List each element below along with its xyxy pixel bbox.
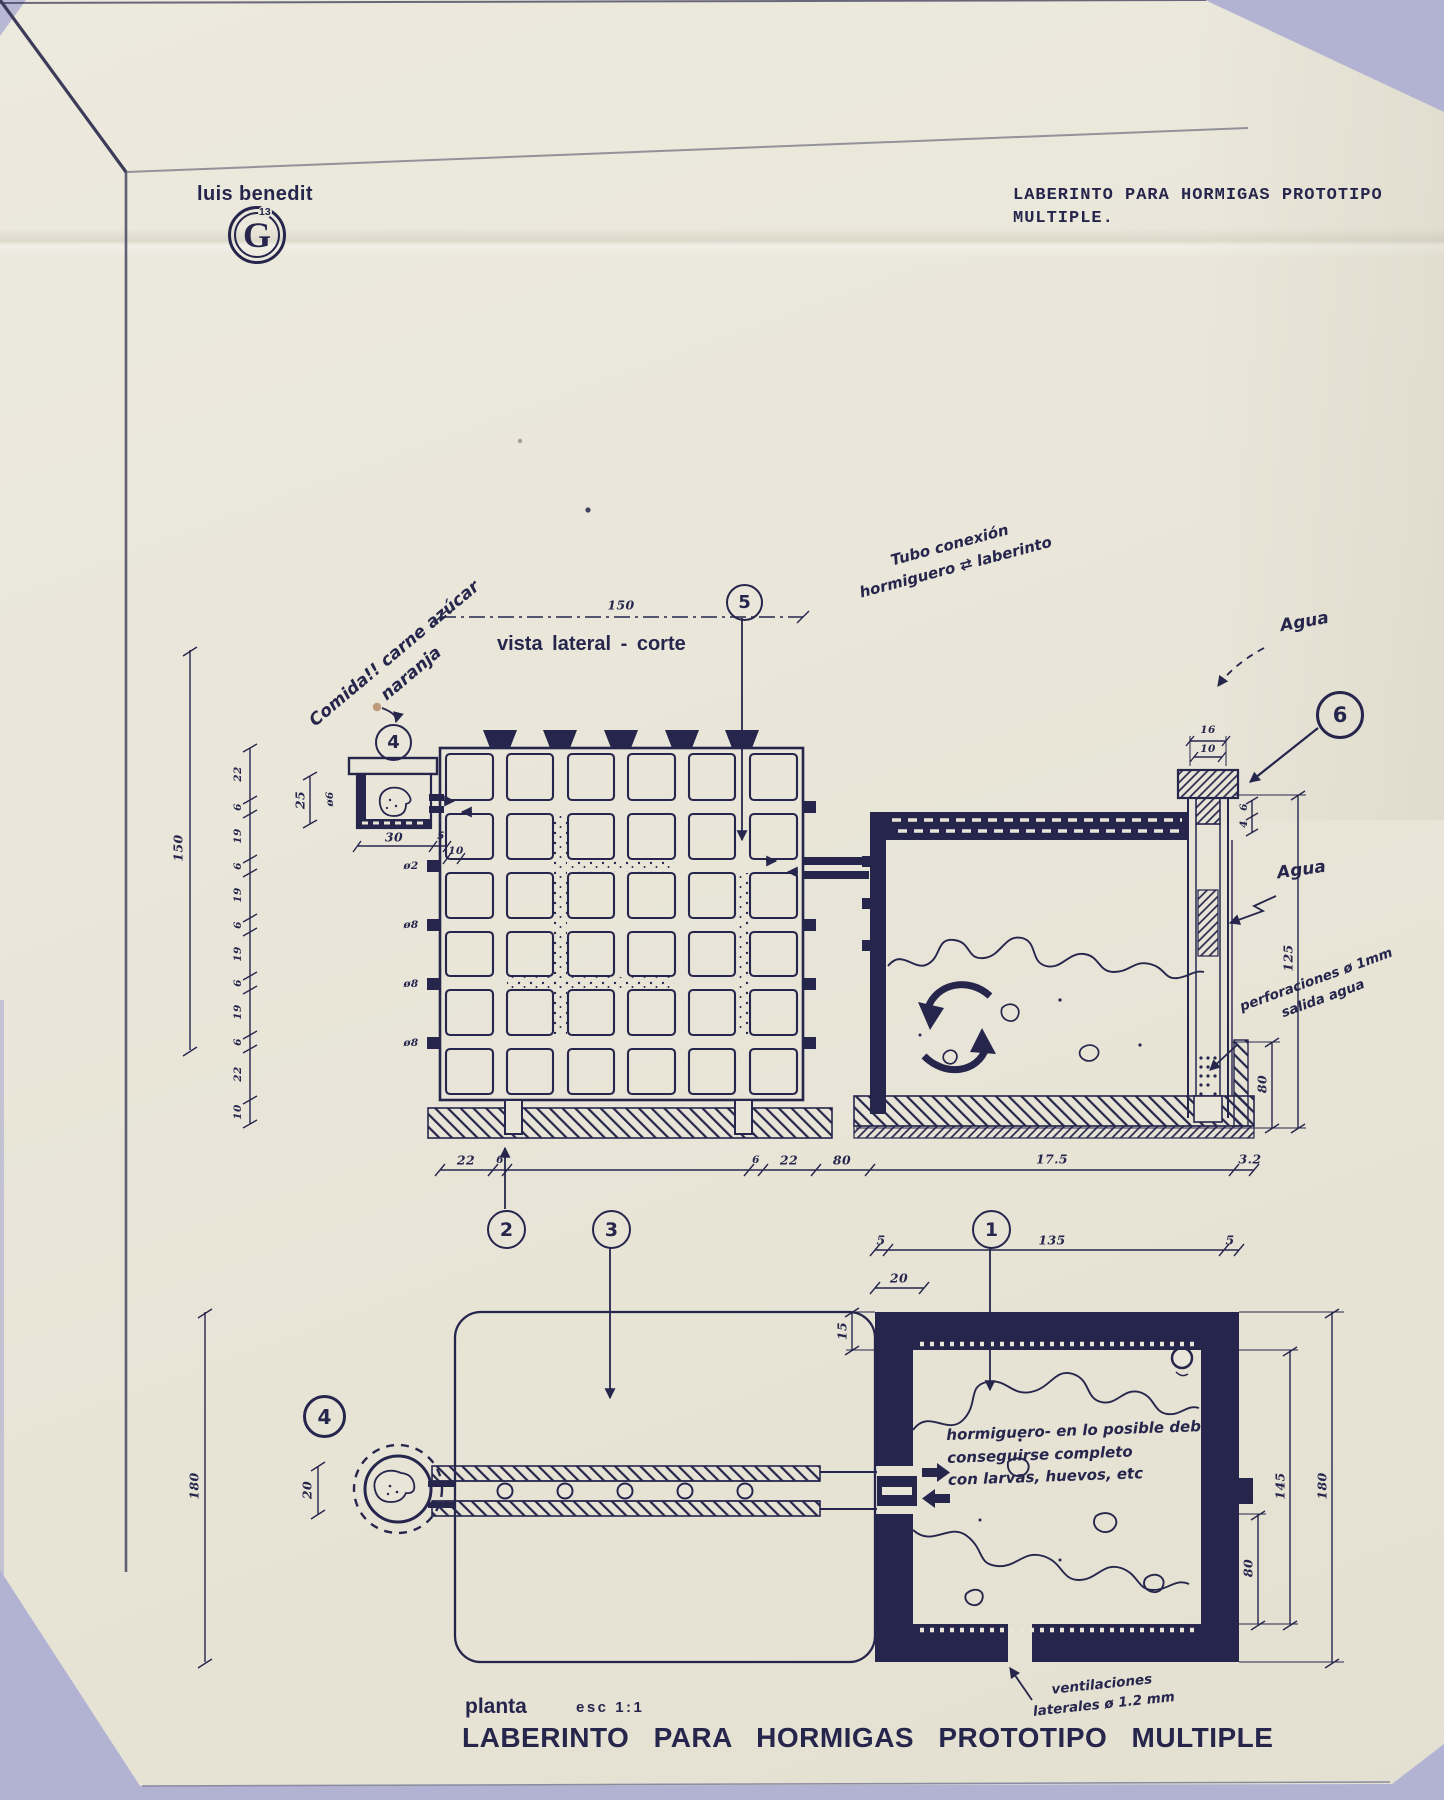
- dim-seg-2: 19: [232, 828, 244, 843]
- dim-seg-10: 22: [232, 1066, 244, 1081]
- callout-2: 2: [487, 1210, 526, 1249]
- dim-cap-inner: 10: [1200, 743, 1215, 755]
- base-slabs: [428, 1040, 1254, 1138]
- callout-3: 3: [592, 1210, 631, 1249]
- dim-cap-outer: 16: [1200, 724, 1215, 736]
- dim-feeder-height: 25: [293, 791, 308, 809]
- plan-dim-top-middle: 135: [1038, 1233, 1065, 1248]
- dim-seg-7: 6: [232, 979, 244, 987]
- dim-bottom-1: 6: [496, 1154, 504, 1166]
- dim-bottom-4: 80: [833, 1153, 851, 1168]
- dim-water-depth: 80: [1255, 1075, 1270, 1093]
- plan-dim-right-inner: 145: [1273, 1472, 1288, 1499]
- feeder-plan: [354, 1445, 456, 1533]
- plan-scale-label: esc 1:1: [576, 1699, 644, 1716]
- plan-dim-top-right: 5: [1225, 1233, 1234, 1248]
- sheet-title-line2: MULTIPLE.: [1013, 209, 1114, 228]
- technical-drawing: [0, 0, 1444, 1800]
- dim-seg-9: 6: [232, 1038, 244, 1046]
- hole-label-2: ø8: [403, 978, 418, 990]
- dim-feeder-width: 30: [385, 830, 403, 845]
- dim-bottom-6: 3.2: [1239, 1152, 1262, 1167]
- callout-1: 1: [972, 1210, 1011, 1249]
- plan-dim-left-overall: 180: [187, 1472, 202, 1499]
- dim-rim-1: 6: [1238, 803, 1250, 811]
- dim-seg-5: 6: [232, 921, 244, 929]
- dim-seg-0: 22: [232, 766, 244, 781]
- dim-bottom-2: 6: [752, 1154, 760, 1166]
- hole-label-0: ø2: [403, 860, 418, 872]
- dim-feeder-tube: ø6: [324, 791, 336, 806]
- dim-top-width: 150: [607, 598, 634, 613]
- plan-dim-wall: 15: [835, 1322, 850, 1340]
- callout-4-plan: 4: [303, 1395, 346, 1438]
- dim-rim-2: 4: [1238, 820, 1250, 828]
- labyrinth-outline-plan: [455, 1312, 875, 1662]
- author-name: luis benedit: [197, 183, 313, 206]
- plan-dim-right-overall: 180: [1315, 1472, 1330, 1499]
- scanned-drawing-sheet: luis benedit G 13 LABERINTO PARA HORMIGA…: [0, 0, 1444, 1800]
- hole-label-1: ø8: [403, 919, 418, 931]
- plan-dim-entry-offset: 20: [890, 1271, 908, 1286]
- maze-grid: [427, 730, 869, 1134]
- dim-seg-11: 10: [232, 1104, 244, 1119]
- hole-label-3: ø8: [403, 1037, 418, 1049]
- dim-seg-4: 19: [232, 887, 244, 902]
- feeder-box: [349, 758, 444, 828]
- dim-left-overall: 150: [171, 834, 186, 861]
- cayc-stamp: G 13: [228, 206, 286, 264]
- dim-bottom-3: 22: [780, 1153, 798, 1168]
- dim-box-height: 125: [1281, 944, 1296, 971]
- plan-dim-top-left: 5: [876, 1233, 885, 1248]
- stamp-letter: G: [243, 214, 271, 256]
- dim-seg-3: 6: [232, 862, 244, 870]
- dim-seg-1: 6: [232, 803, 244, 811]
- sheet-title-line1: LABERINTO PARA HORMIGAS PROTOTIPO: [1013, 186, 1383, 205]
- dim-bottom-5: 17.5: [1036, 1152, 1068, 1167]
- dim-seg-6: 19: [232, 946, 244, 961]
- dim-feeder-lip: 5: [437, 830, 445, 842]
- dim-bottom-0: 22: [457, 1153, 475, 1168]
- callout-5: 5: [726, 584, 763, 621]
- dim-feeder-lip2: 10: [448, 845, 463, 857]
- callout-4-lateral: 4: [375, 724, 412, 761]
- stamp-number: 13: [258, 206, 272, 218]
- tube-plan: [432, 1463, 950, 1516]
- lateral-view-label: vista lateral - corte: [497, 633, 686, 656]
- dim-seg-8: 19: [232, 1004, 244, 1019]
- bottom-title: LABERINTO PARA HORMIGAS PROTOTIPO MULTIP…: [462, 1722, 1273, 1754]
- nest-box: [862, 812, 1204, 1114]
- plan-dim-right-lower: 80: [1241, 1559, 1256, 1577]
- hormiguero-annotation: hormiguero- en lo posible debe conseguir…: [946, 1415, 1213, 1492]
- plan-view-label: planta: [465, 1695, 527, 1719]
- callout-6: 6: [1316, 691, 1364, 739]
- plan-dim-tube-width: 20: [300, 1481, 315, 1499]
- water-tube: [1178, 770, 1238, 1122]
